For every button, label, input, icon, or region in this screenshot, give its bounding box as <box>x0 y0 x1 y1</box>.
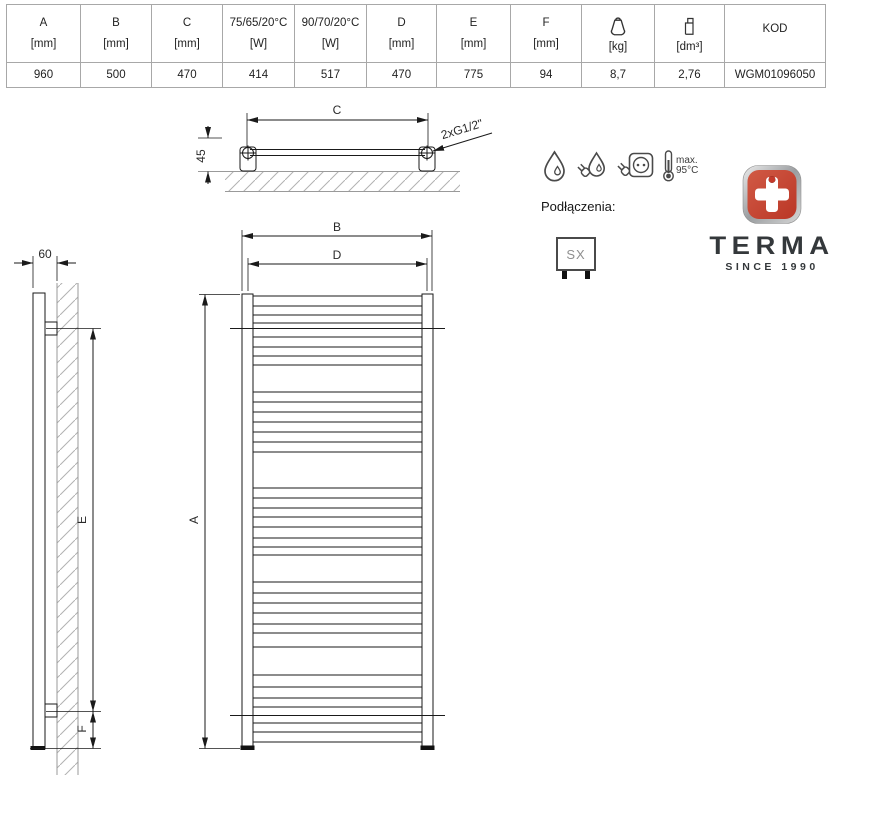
connection-type-symbol: SX <box>556 237 596 279</box>
max-temp-line1: max. <box>676 156 698 166</box>
dim-label-b: B <box>333 220 341 234</box>
water-electric-icon <box>576 149 609 182</box>
wall-hatch-top-view <box>225 172 460 192</box>
electric-socket-icon <box>617 150 654 181</box>
max-temp-block: max. 95°C <box>662 149 698 182</box>
front-foot-right <box>421 746 435 751</box>
side-view: 60 E F <box>14 247 101 775</box>
brand-tagline: SINCE 1990 <box>711 261 833 273</box>
collector-left <box>242 294 253 748</box>
top-view: C 45 2xG1/2" <box>194 103 492 192</box>
dim-label-c: C <box>333 103 342 117</box>
radiator-side-profile <box>33 293 45 749</box>
dim-label-60: 60 <box>38 247 52 261</box>
side-bracket-bottom <box>45 704 57 717</box>
feature-icons-row: max. 95°C <box>541 149 698 182</box>
connections-heading: Podłączenia: <box>541 199 615 214</box>
dim-label-45: 45 <box>194 149 208 163</box>
connection-size-label: 2xG1/2" <box>439 116 484 142</box>
dim-label-e: E <box>75 516 89 524</box>
connection-type-label: SX <box>556 237 596 271</box>
collector-right <box>422 294 433 748</box>
front-foot-left <box>241 746 255 751</box>
side-foot <box>31 746 46 750</box>
connection-pins <box>556 271 596 279</box>
water-drop-icon <box>541 149 568 182</box>
brand-name: TERMA <box>705 233 839 259</box>
brand-block: TERMA SINCE 1990 <box>711 164 833 273</box>
max-temp-line2: 95°C <box>676 166 698 176</box>
datasheet-page: A[mm] B[mm] C[mm] 75/65/20°C[W] 90/70/20… <box>0 0 871 821</box>
dim-label-a: A <box>187 516 201 524</box>
terma-logo-badge <box>742 164 802 225</box>
thermometer-icon <box>662 149 675 182</box>
dim-label-f: F <box>75 725 89 732</box>
front-view: B D A <box>187 220 445 750</box>
technical-drawing: C 45 2xG1/2" 60 <box>0 0 871 821</box>
dim-label-d: D <box>333 248 342 262</box>
radiator-rungs <box>253 296 422 742</box>
wall-hatch-side-view <box>57 283 78 775</box>
